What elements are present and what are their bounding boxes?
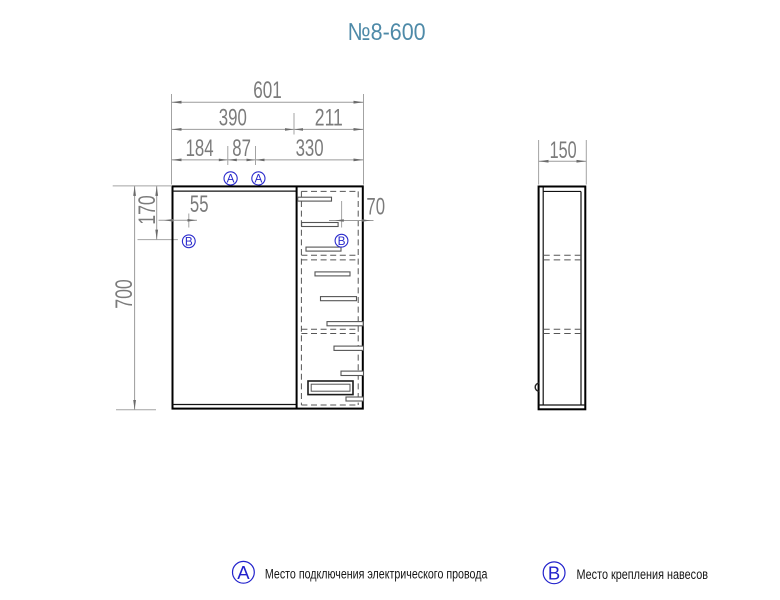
svg-text:700: 700	[111, 279, 138, 309]
svg-text:В: В	[548, 562, 560, 583]
svg-text:390: 390	[219, 104, 247, 131]
svg-text:Место крепления навесов: Место крепления навесов	[577, 567, 709, 583]
svg-text:В: В	[338, 234, 346, 248]
svg-text:601: 601	[253, 77, 282, 104]
svg-text:184: 184	[186, 135, 214, 162]
svg-text:В: В	[185, 235, 193, 249]
svg-text:150: 150	[550, 137, 577, 164]
svg-text:330: 330	[296, 135, 324, 162]
svg-text:А: А	[237, 562, 250, 583]
svg-text:А: А	[227, 172, 235, 186]
svg-text:№8-600: №8-600	[348, 19, 426, 46]
svg-text:170: 170	[134, 195, 161, 225]
svg-text:211: 211	[315, 104, 343, 131]
svg-text:Место подключения электрическо: Место подключения электрического провода	[265, 567, 488, 583]
svg-text:55: 55	[190, 191, 209, 218]
svg-text:70: 70	[366, 194, 385, 221]
svg-text:А: А	[254, 172, 262, 186]
svg-text:87: 87	[232, 135, 251, 162]
